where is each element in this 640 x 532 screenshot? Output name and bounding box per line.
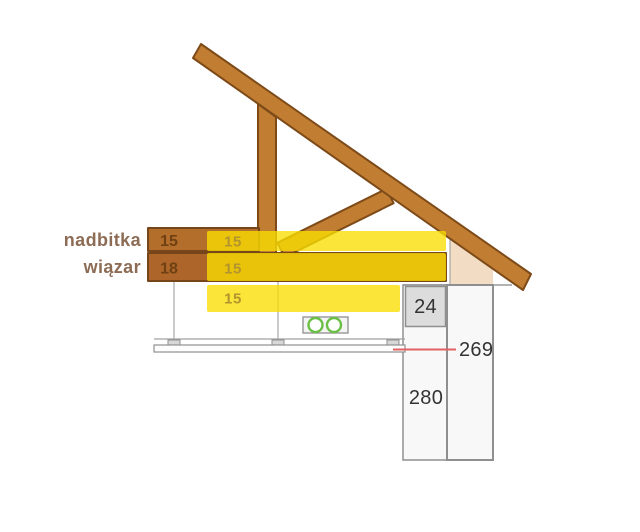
dim-wall-block: 24 (414, 296, 437, 318)
dim-ceiling-level: 269 (459, 339, 493, 361)
dim-wall-height: 280 (409, 387, 443, 409)
nadbitka-thickness-label: 15 (160, 233, 178, 250)
insulation-layer-3-label: 15 (224, 291, 242, 308)
insulation-layer-1-label: 15 (224, 234, 242, 251)
conduit-pipe-icon (327, 318, 341, 332)
diagram-canvas: 15 18 15 15 15 24 269 280 nadbitka wiąza… (0, 0, 640, 532)
conduit-pipe-icon (309, 318, 323, 332)
wiazar-thickness-label: 18 (160, 261, 178, 278)
exterior-wall-layer (447, 285, 493, 460)
truss-post (258, 104, 276, 253)
roof-insulation-diagram: 15 18 15 15 15 24 269 280 nadbitka wiąza… (0, 0, 640, 532)
insulation-layer-2 (207, 253, 446, 281)
ceiling-board (154, 345, 405, 352)
label-wiazar: wiązar (83, 257, 141, 277)
insulation-layer-1 (207, 231, 446, 251)
insulation-layer-2-label: 15 (224, 261, 242, 278)
label-nadbitka: nadbitka (64, 230, 142, 250)
